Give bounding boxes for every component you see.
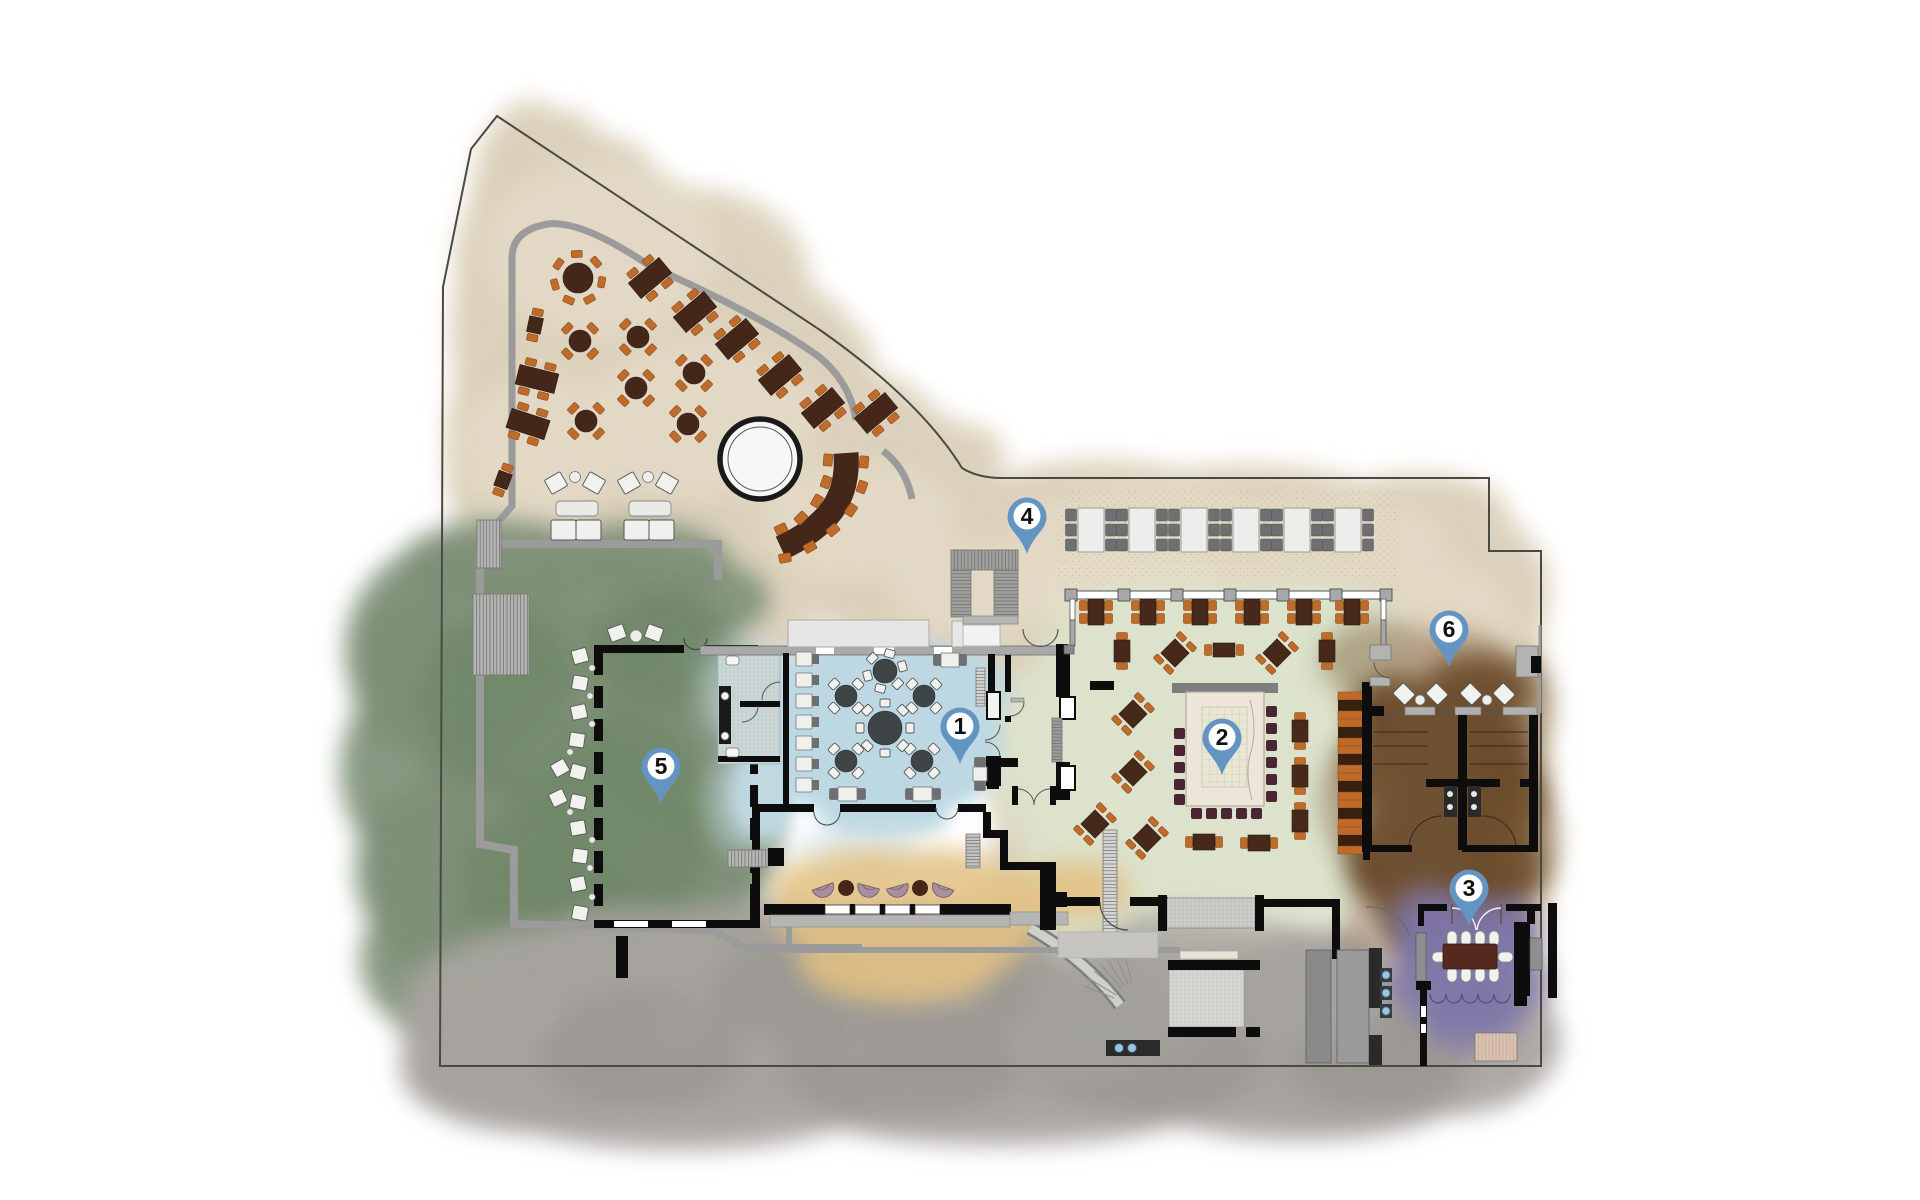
svg-text:6: 6 [1443, 616, 1456, 642]
svg-text:1: 1 [954, 713, 967, 739]
svg-text:5: 5 [655, 753, 668, 779]
svg-text:3: 3 [1463, 875, 1476, 901]
svg-text:2: 2 [1216, 724, 1229, 750]
svg-text:4: 4 [1021, 503, 1034, 529]
